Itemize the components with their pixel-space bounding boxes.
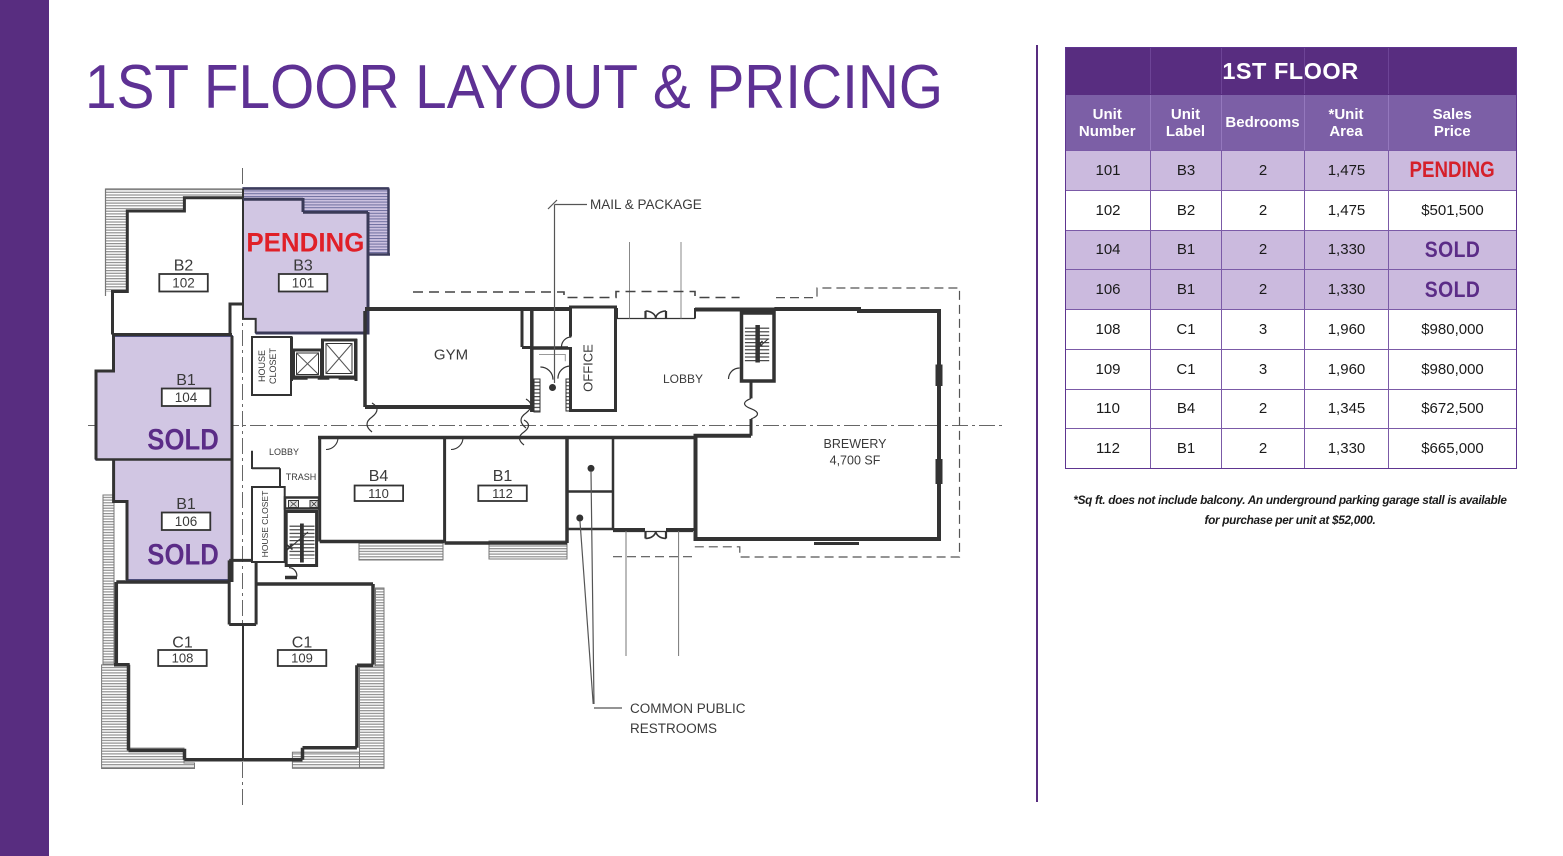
svg-text:CLOSET: CLOSET <box>268 347 278 384</box>
svg-text:TRASH: TRASH <box>286 472 317 482</box>
svg-text:112: 112 <box>492 486 513 501</box>
svg-text:HOUSE CLOSET: HOUSE CLOSET <box>260 491 270 558</box>
svg-text:C1: C1 <box>292 635 313 652</box>
svg-text:B3: B3 <box>293 258 313 275</box>
svg-text:109: 109 <box>291 651 313 666</box>
svg-text:BREWERY: BREWERY <box>824 437 888 451</box>
svg-text:4,700 SF: 4,700 SF <box>830 454 881 468</box>
svg-text:B2: B2 <box>174 258 194 275</box>
svg-text:LOBBY: LOBBY <box>269 447 299 457</box>
svg-text:106: 106 <box>175 514 198 529</box>
svg-text:COMMON PUBLIC: COMMON PUBLIC <box>630 701 746 716</box>
svg-text:101: 101 <box>292 276 315 291</box>
svg-text:SOLD: SOLD <box>147 539 219 572</box>
svg-text:B4: B4 <box>369 468 389 485</box>
svg-text:102: 102 <box>172 276 195 291</box>
svg-text:104: 104 <box>175 390 198 405</box>
svg-text:108: 108 <box>172 651 194 666</box>
svg-text:RESTROOMS: RESTROOMS <box>630 721 717 736</box>
svg-text:B1: B1 <box>493 468 513 485</box>
svg-text:C1: C1 <box>172 635 193 652</box>
svg-text:HOUSE: HOUSE <box>257 350 267 382</box>
svg-text:MAIL & PACKAGE: MAIL & PACKAGE <box>590 197 702 212</box>
svg-text:B1: B1 <box>176 372 196 389</box>
svg-text:PENDING: PENDING <box>246 228 364 258</box>
svg-text:OFFICE: OFFICE <box>581 344 596 392</box>
svg-text:B1: B1 <box>176 496 196 513</box>
svg-text:LOBBY: LOBBY <box>663 372 703 386</box>
svg-text:110: 110 <box>368 486 389 501</box>
svg-text:GYM: GYM <box>434 347 468 364</box>
svg-text:SOLD: SOLD <box>147 424 219 457</box>
